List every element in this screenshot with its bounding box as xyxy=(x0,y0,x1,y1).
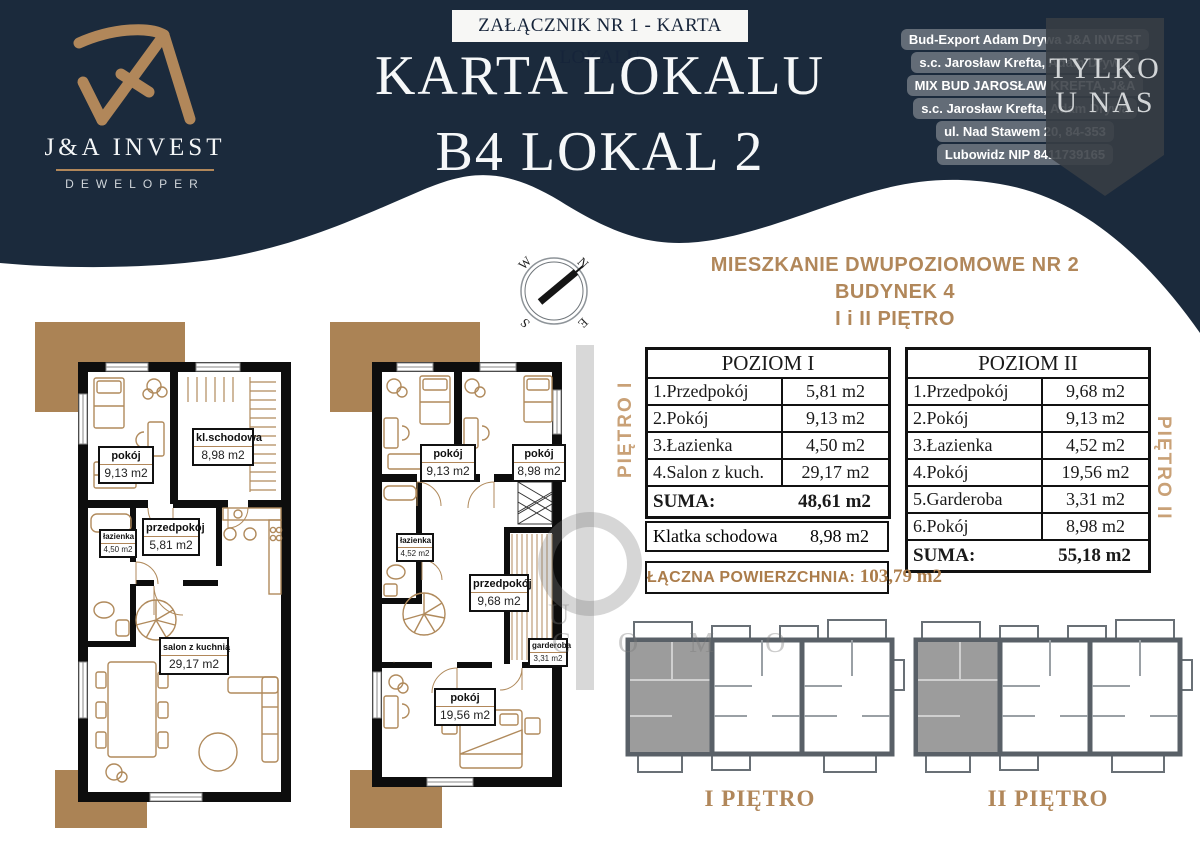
total-area-box: ŁĄCZNA POWIERZCHNIA: 103,79 m2 xyxy=(645,561,889,594)
table-row: 4.Pokój 19,56 m2 xyxy=(908,460,1148,487)
compass-s: S xyxy=(517,315,533,331)
room-label: salon z kuchnią 29,17 m2 xyxy=(159,637,229,675)
table-row: 2.Pokój 9,13 m2 xyxy=(648,406,888,433)
table-suma-row: SUMA: 55,18 m2 xyxy=(908,541,1148,570)
watermark-shape xyxy=(576,345,594,690)
building-overview-floor-1 xyxy=(612,616,908,778)
logo-divider xyxy=(56,169,214,171)
ribbon-line-1: TYLKO xyxy=(1046,52,1164,86)
room-label: pokój 8,98 m2 xyxy=(512,444,566,482)
table-row: 2.Pokój 9,13 m2 xyxy=(908,406,1148,433)
floor-plan-1 xyxy=(78,362,291,802)
company-logo: J&A INVEST DEWELOPER xyxy=(35,22,235,191)
table-poziom-2-title: POZIOM II xyxy=(908,350,1148,379)
table-row: 6.Pokój 8,98 m2 xyxy=(908,514,1148,541)
room-label: pokój 9,13 m2 xyxy=(98,446,154,484)
mini-plan-label-1: I PIĘTRO xyxy=(612,786,908,812)
table-row: 1.Przedpokój 5,81 m2 xyxy=(648,379,888,406)
logo-brand-text: J&A INVEST xyxy=(35,134,235,162)
logo-monogram-icon xyxy=(69,22,201,130)
floor-plan-1-drawing xyxy=(78,362,291,802)
table-row: 3.Łazienka 4,52 m2 xyxy=(908,433,1148,460)
logo-subtitle: DEWELOPER xyxy=(35,177,235,191)
table-poziom-2: POZIOM II 1.Przedpokój 9,68 m2 2.Pokój 9… xyxy=(905,347,1151,573)
compass-n: N xyxy=(575,254,593,272)
room-label: kl.schodowa 8,98 m2 xyxy=(192,428,254,466)
highlighted-unit xyxy=(918,642,998,752)
room-label: garderoba 3,31 m2 xyxy=(528,638,568,667)
building-overview-floor-2 xyxy=(900,616,1196,778)
listing-heading-line3: I i II PIĘTRO xyxy=(645,306,1145,333)
ribbon-line-2: U NAS xyxy=(1046,86,1164,120)
table-poziom-1: POZIOM I 1.Przedpokój 5,81 m2 2.Pokój 9,… xyxy=(645,347,891,519)
table-row: 4.Salon z kuch. 29,17 m2 xyxy=(648,460,888,487)
table-row: 5.Garderoba 3,31 m2 xyxy=(908,487,1148,514)
compass-e: E xyxy=(575,315,591,331)
attachment-badge: ZAŁĄCZNIK NR 1 - KARTA LOKALU xyxy=(452,10,748,42)
staircase-box: Klatka schodowa 8,98 m2 xyxy=(645,521,889,552)
compass-w: W xyxy=(515,253,535,273)
room-label: pokój 19,56 m2 xyxy=(434,688,496,726)
table-suma-row: SUMA: 48,61 m2 xyxy=(648,487,888,516)
room-label: przedpokój 9,68 m2 xyxy=(469,574,529,612)
table-row: 1.Przedpokój 9,68 m2 xyxy=(908,379,1148,406)
compass-icon: W N S E xyxy=(514,248,594,334)
highlighted-unit xyxy=(630,642,710,752)
table-poziom-1-title: POZIOM I xyxy=(648,350,888,379)
listing-heading: MIESZKANIE DWUPOZIOMOWE NR 2 BUDYNEK 4 I… xyxy=(645,252,1145,333)
side-label-pietro-2: PIĘTRO II xyxy=(1152,388,1174,548)
listing-heading-line2: BUDYNEK 4 xyxy=(645,279,1145,306)
karta-lokalu-page: J&A INVEST DEWELOPER ZAŁĄCZNIK NR 1 - KA… xyxy=(0,0,1200,849)
listing-heading-line1: MIESZKANIE DWUPOZIOMOWE NR 2 xyxy=(645,252,1145,279)
page-subtitle: B4 LOKAL 2 xyxy=(300,120,900,184)
room-label: łazienka 4,52 m2 xyxy=(396,533,434,562)
room-label: łazienka 4,50 m2 xyxy=(99,529,137,558)
side-label-pietro-1: PIĘTRO I xyxy=(615,366,637,492)
room-label: przedpokój 5,81 m2 xyxy=(142,518,200,556)
table-row: 3.Łazienka 4,50 m2 xyxy=(648,433,888,460)
mini-plan-label-2: II PIĘTRO xyxy=(900,786,1196,812)
room-label: pokój 9,13 m2 xyxy=(420,444,476,482)
page-title: KARTA LOKALU xyxy=(300,44,900,108)
